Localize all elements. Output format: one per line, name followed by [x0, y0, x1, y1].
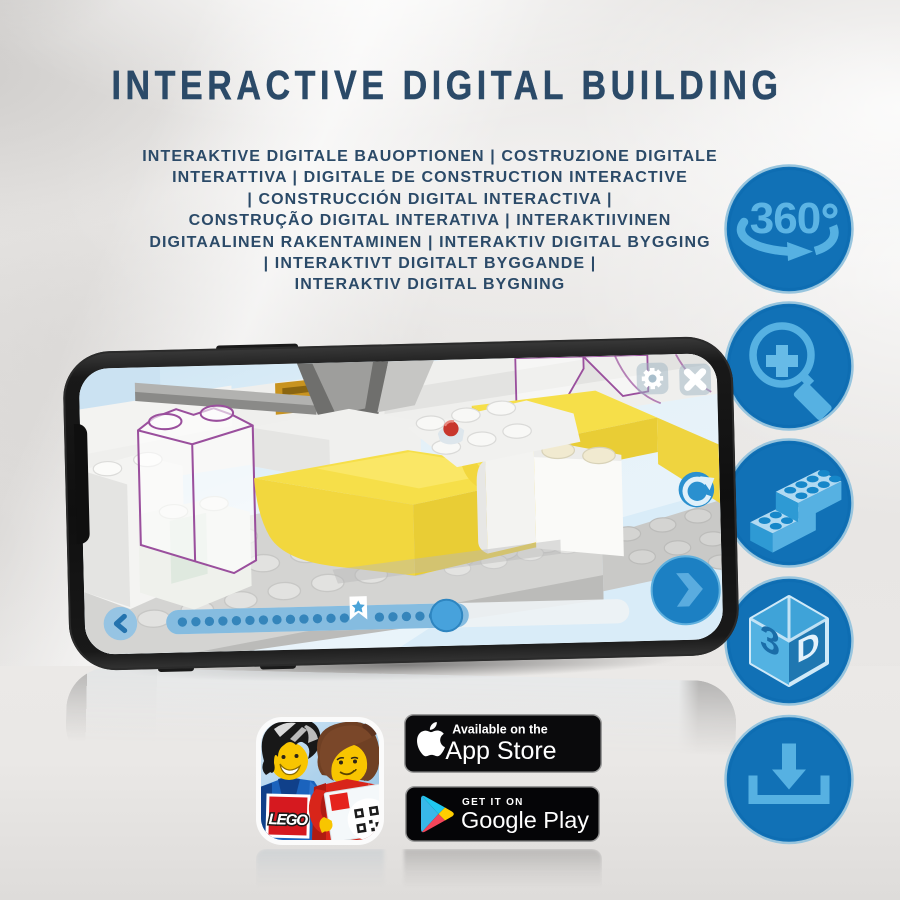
svg-text:360: 360	[750, 194, 820, 243]
svg-text:App Store: App Store	[445, 737, 556, 765]
svg-text:Google Play: Google Play	[461, 807, 589, 833]
svg-text:LEGO: LEGO	[268, 811, 308, 829]
svg-text:Available on the: Available on the	[452, 723, 547, 737]
